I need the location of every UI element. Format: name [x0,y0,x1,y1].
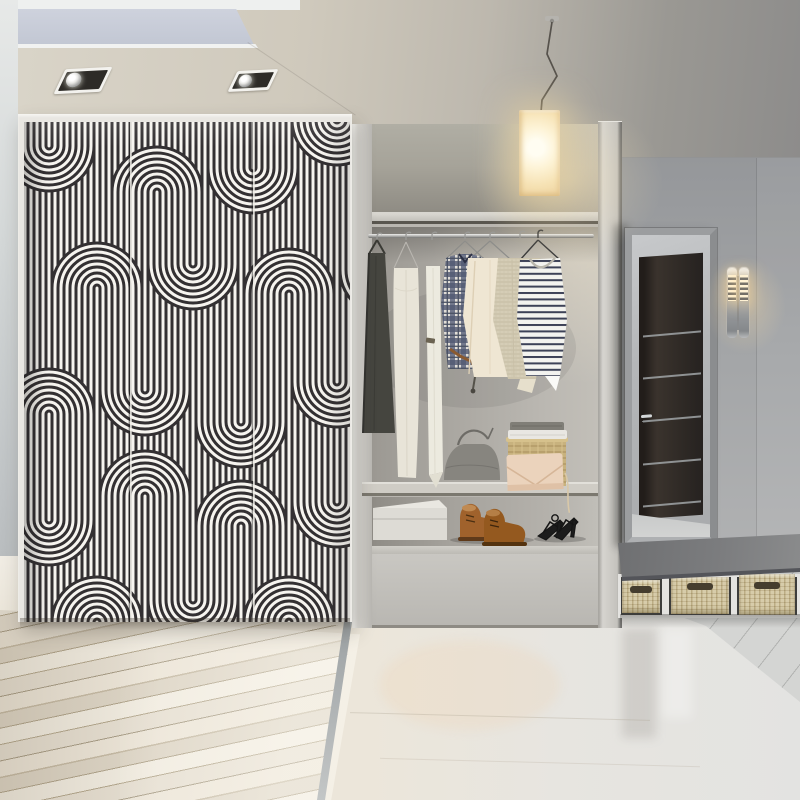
tile-seam [380,758,700,767]
wardrobe-pattern [24,122,350,622]
lamp-floor-reflection [380,640,560,730]
ceiling-panel-edge [0,44,258,48]
mirror-floor-reflection [622,628,656,738]
wood-floor-glare [120,620,360,800]
left-baseboard [0,562,18,614]
wicker-storage-basket[interactable] [671,577,729,614]
tile-seam [350,712,650,721]
ceiling-cornice [0,0,300,10]
door-inlay-strip [643,415,701,422]
sconce-cylinder[interactable] [739,268,749,338]
closet-base-panel [352,554,622,628]
recessed-spotlight-icon [53,67,112,94]
pendant-cord [525,14,569,114]
basket-handle-slot [754,582,780,589]
sconce-lit-slots [740,275,748,301]
bench-floor-shadow [620,614,800,628]
closet-bottom-board [372,546,598,554]
door-inlay-strip [643,330,701,337]
closet-contents [362,228,598,546]
reflected-door-handle-icon [641,414,652,418]
folded-cloths [508,422,567,439]
wardrobe[interactable] [18,114,352,622]
leather-boot[interactable] [482,509,527,546]
reflected-door [639,253,703,519]
pendant-lamp-shade[interactable] [519,110,560,196]
reflected-floor [632,509,710,537]
door-inlay-strip [643,458,701,465]
floor-transition-trim [312,622,354,800]
wall-corner-line [756,158,757,578]
grey-handbag[interactable] [444,428,500,480]
hallway-scene [0,0,800,800]
sconce-lit-slots [728,275,736,301]
shoe-box[interactable] [373,500,447,540]
basket-handle-slot [687,583,713,590]
door-inlay-strip [643,372,701,379]
garment-cream-dress[interactable] [393,268,419,478]
closet-top-shelf [372,212,598,224]
closet-right-tower [598,121,622,628]
mirror[interactable] [625,228,717,544]
wicker-storage-basket[interactable] [739,574,795,615]
side-wall [757,158,800,578]
wicker-storage-basket[interactable] [622,580,660,613]
black-hanger [520,230,559,260]
left-wall [0,0,18,615]
floor-highlight-reflection [662,628,692,718]
wood-floor [0,600,352,800]
basket-handle-slot [630,586,652,593]
envelope-clutch[interactable] [506,453,569,515]
door-inlay-strip [643,500,701,507]
sconce-cylinder[interactable] [727,268,737,338]
closet-top-recess [372,124,598,212]
ceiling-recessed-panel [0,9,254,45]
mirror-glass [632,235,710,537]
strappy-heels[interactable] [534,515,586,543]
garment-white-long[interactable] [426,266,443,488]
recessed-spotlight-icon [227,69,278,92]
